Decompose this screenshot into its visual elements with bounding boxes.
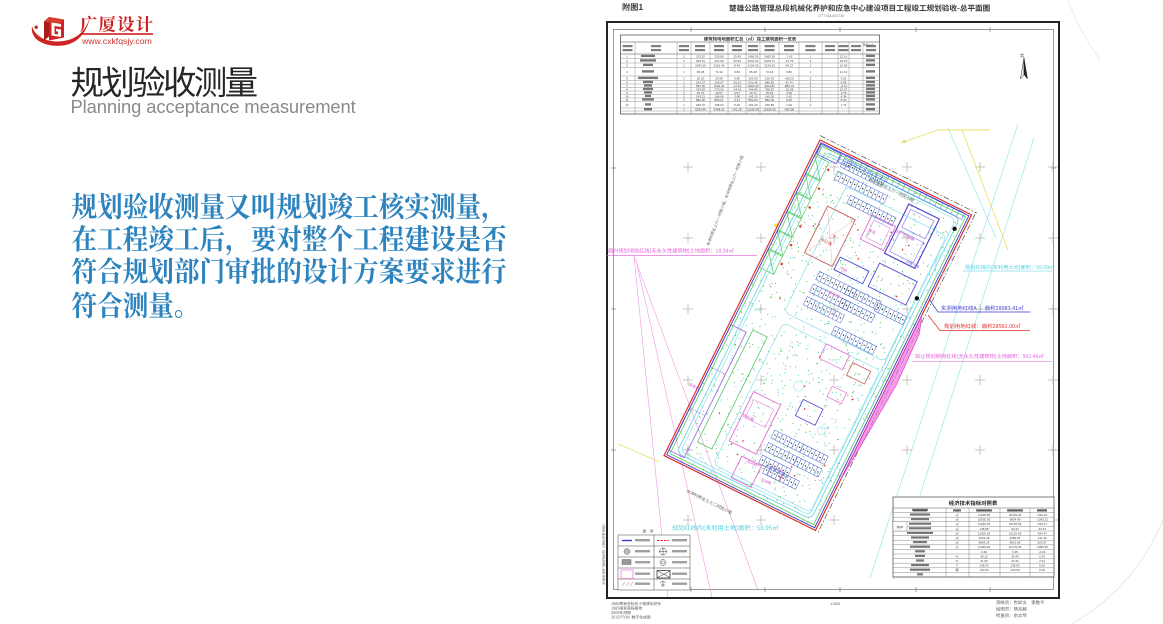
svg-text:6.80: 6.80 <box>786 70 792 74</box>
svg-text:+401.41: +401.41 <box>1037 508 1048 512</box>
svg-text:2777.918-000.738: 2777.918-000.738 <box>818 14 844 18</box>
svg-text:11.13: 11.13 <box>840 70 848 74</box>
svg-text:141.33: 141.33 <box>1037 536 1047 540</box>
svg-text:Planning acceptance measuremen: Planning acceptance measurement <box>71 96 356 117</box>
svg-text:11158.98: 11158.98 <box>978 513 990 517</box>
svg-text:㎡: ㎡ <box>955 517 958 522</box>
svg-text:3.84: 3.84 <box>734 70 740 74</box>
svg-text:23.18: 23.18 <box>840 59 848 63</box>
svg-text:11: 11 <box>625 98 628 102</box>
svg-text:39.12: 39.12 <box>980 554 988 558</box>
svg-text:10125.69: 10125.69 <box>1009 522 1022 526</box>
svg-text:-1095.51: -1095.51 <box>1036 518 1048 522</box>
svg-text:㎡: ㎡ <box>955 512 958 517</box>
svg-text:22.16: 22.16 <box>840 54 848 58</box>
svg-text:1485.38: 1485.38 <box>764 54 775 58</box>
svg-text:882.00: 882.00 <box>748 98 758 102</box>
svg-text:291.03: 291.03 <box>748 103 758 107</box>
svg-text:-1.42: -1.42 <box>786 54 793 58</box>
svg-text:0.33: 0.33 <box>1039 554 1045 558</box>
svg-text:10229.00: 10229.00 <box>1009 513 1022 517</box>
svg-text:1.00: 1.00 <box>786 103 792 107</box>
svg-text:6029.46: 6029.46 <box>695 108 706 112</box>
svg-text:2130.63: 2130.63 <box>764 63 775 67</box>
svg-text:2101.46: 2101.46 <box>714 63 725 67</box>
svg-text:10125.69: 10125.69 <box>1009 531 1022 535</box>
svg-text:6486.81: 6486.81 <box>1010 536 1021 540</box>
svg-text:882.00: 882.00 <box>696 98 706 102</box>
svg-text:㎡: ㎡ <box>955 530 958 535</box>
svg-text:65.48: 65.48 <box>749 70 757 74</box>
svg-text:94.31: 94.31 <box>1011 527 1019 531</box>
svg-text:12179.30: 12179.30 <box>1009 545 1022 549</box>
svg-text:120.00: 120.00 <box>1010 568 1020 572</box>
svg-text:141.28: 141.28 <box>732 108 742 112</box>
svg-text:0.35: 0.35 <box>1012 550 1018 554</box>
svg-text:6498.51: 6498.51 <box>714 108 725 112</box>
svg-text:11269.26: 11269.26 <box>978 545 991 549</box>
svg-text:2223.71: 2223.71 <box>764 59 775 63</box>
svg-text:138.00: 138.00 <box>1010 564 1020 568</box>
svg-text:7.74: 7.74 <box>841 103 847 107</box>
svg-text:㎡: ㎡ <box>955 535 958 540</box>
svg-text:㎡: ㎡ <box>955 507 958 512</box>
svg-text:2232.41: 2232.41 <box>748 59 759 63</box>
svg-text:0.00: 0.00 <box>1039 564 1045 568</box>
svg-text:11020.00: 11020.00 <box>978 522 991 526</box>
svg-text:275.52: 275.52 <box>696 54 706 58</box>
svg-text:12.08: 12.08 <box>840 63 848 67</box>
svg-text:辆: 辆 <box>955 567 958 572</box>
svg-text:㎡: ㎡ <box>955 544 958 549</box>
svg-text:%: % <box>956 554 959 558</box>
svg-text:-14.75: -14.75 <box>785 59 794 63</box>
svg-text:www.cxkfqsjy.com: www.cxkfqsjy.com <box>81 36 152 46</box>
svg-text:个: 个 <box>955 564 958 568</box>
svg-text:71.32: 71.32 <box>715 70 723 74</box>
svg-text:239.80: 239.80 <box>714 54 724 58</box>
svg-text:23.93: 23.93 <box>733 59 741 63</box>
svg-text:290.85: 290.85 <box>765 103 775 107</box>
svg-text:11195.98: 11195.98 <box>747 108 759 112</box>
svg-text:-993.58: -993.58 <box>784 108 795 112</box>
svg-text:293.70: 293.70 <box>696 103 706 107</box>
svg-text:9816.85: 9816.85 <box>1010 541 1021 545</box>
svg-text:28581.90: 28581.90 <box>978 508 991 512</box>
svg-text:8.40: 8.40 <box>841 98 847 102</box>
svg-text:5.29: 5.29 <box>734 103 740 107</box>
svg-text:65.48: 65.48 <box>697 70 705 74</box>
svg-text:431.90: 431.90 <box>714 59 724 63</box>
svg-text:-64.27: -64.27 <box>785 63 794 67</box>
svg-text:2093.00: 2093.00 <box>695 63 706 67</box>
svg-text:-924.47: -924.47 <box>1037 531 1048 535</box>
svg-text:-1089.96: -1089.96 <box>1036 545 1048 549</box>
svg-text:-44.67: -44.67 <box>1038 527 1047 531</box>
svg-text:10208.30: 10208.30 <box>763 108 776 112</box>
svg-text:138.00: 138.00 <box>979 564 989 568</box>
svg-text:9834.49: 9834.49 <box>1010 518 1021 522</box>
svg-text:8966.28: 8966.28 <box>979 541 990 545</box>
svg-text:10930.00: 10930.00 <box>978 518 991 522</box>
svg-text:2.91: 2.91 <box>1039 559 1045 563</box>
svg-text:11000.18: 11000.18 <box>978 531 991 535</box>
svg-text:%: % <box>956 559 959 563</box>
svg-text:-930.04: -930.04 <box>1037 513 1048 517</box>
svg-text:1486.50: 1486.50 <box>748 54 759 58</box>
svg-text:4.21: 4.21 <box>734 98 740 102</box>
svg-text:0.00: 0.00 <box>1039 568 1045 572</box>
svg-text:72.18: 72.18 <box>766 70 774 74</box>
svg-text:31.66: 31.66 <box>980 559 988 563</box>
svg-text:33.43: 33.43 <box>1011 554 1019 558</box>
svg-text:㎡: ㎡ <box>955 526 958 531</box>
svg-text:34.31: 34.31 <box>1011 559 1019 563</box>
svg-text:820.57: 820.57 <box>1037 541 1047 545</box>
svg-text:886.21: 886.21 <box>714 98 724 102</box>
svg-text:6323.46: 6323.46 <box>979 536 990 540</box>
svg-text:12: 12 <box>625 103 629 107</box>
svg-text:㎡: ㎡ <box>955 521 958 526</box>
svg-text:1:500: 1:500 <box>830 601 841 606</box>
svg-text:-0.04: -0.04 <box>1039 550 1046 554</box>
svg-text:㎡: ㎡ <box>955 540 958 545</box>
svg-text:2134.50: 2134.50 <box>748 63 759 67</box>
svg-text:13.45: 13.45 <box>733 54 741 58</box>
svg-text:28983.41: 28983.41 <box>1009 508 1022 512</box>
svg-text:0.00: 0.00 <box>786 98 792 102</box>
svg-text:138.98: 138.98 <box>979 527 989 531</box>
svg-text:120.00: 120.00 <box>979 568 989 572</box>
svg-text:403.51: 403.51 <box>696 59 706 63</box>
svg-text:198.04: 198.04 <box>714 103 724 107</box>
svg-text:0.39: 0.39 <box>981 550 987 554</box>
svg-text:882.00: 882.00 <box>765 98 775 102</box>
svg-text:-924.47: -924.47 <box>1037 522 1048 526</box>
svg-text:8.46: 8.46 <box>734 63 740 67</box>
